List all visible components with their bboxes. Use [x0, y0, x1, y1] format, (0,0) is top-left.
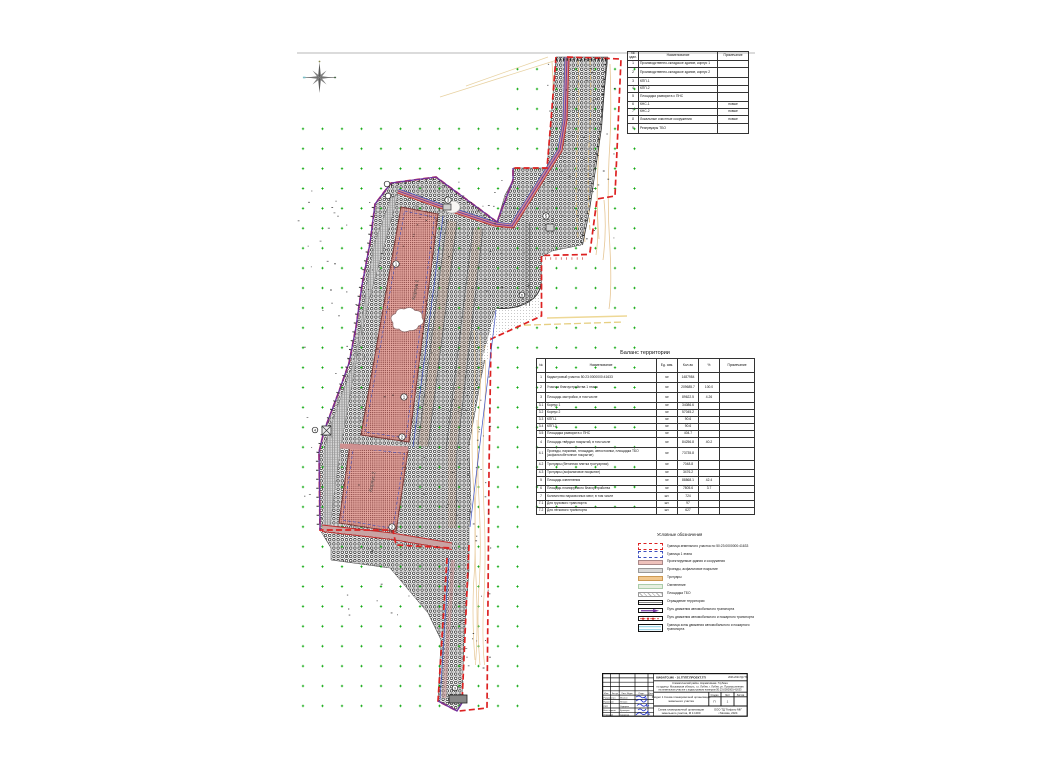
- svg-text:Стадия: Стадия: [710, 694, 719, 696]
- svg-text:Дата: Дата: [648, 692, 654, 694]
- svg-text:Иванов: Иванов: [620, 697, 628, 699]
- svg-text:Сидоров: Сидоров: [620, 705, 630, 707]
- svg-text:на земельном участке с кадастр: на земельном участке с кадастровым номер…: [658, 687, 741, 691]
- svg-text:2023-2024 ГД.ГП1: 2023-2024 ГД.ГП1: [728, 676, 748, 679]
- svg-text:П: П: [713, 699, 715, 703]
- svg-text:Смирнов: Смирнов: [620, 714, 630, 716]
- svg-text:Кузнецов: Кузнецов: [620, 710, 630, 712]
- svg-text:Лист №док: Лист №док: [621, 691, 632, 694]
- svg-text:г.Москва, 2024: г.Москва, 2024: [718, 711, 737, 715]
- svg-text:Утвердил: Утвердил: [603, 714, 613, 716]
- svg-text:Разработал: Разработал: [603, 697, 616, 699]
- svg-text:земельного участка: земельного участка: [668, 699, 694, 703]
- svg-text:Подп.: Подп.: [638, 692, 644, 694]
- svg-text:ГИП: ГИП: [603, 705, 608, 707]
- svg-text:земельного участка, М 1:1000: земельного участка, М 1:1000: [661, 711, 700, 715]
- svg-text:Листов: Листов: [737, 694, 745, 696]
- svg-text:Изм.: Изм.: [604, 692, 609, 694]
- svg-text:Кол.уч: Кол.уч: [612, 692, 618, 694]
- svg-text:Петров: Петров: [620, 701, 628, 703]
- svg-text:1: 1: [726, 699, 728, 703]
- svg-text:Проверил: Проверил: [603, 701, 614, 703]
- svg-text:КИФАТО.МК - 10.ГППТ.ПРОЕКТ.ГП: КИФАТО.МК - 10.ГППТ.ПРОЕКТ.ГП: [656, 675, 705, 679]
- svg-text:Нач. отдела: Нач. отдела: [603, 710, 616, 712]
